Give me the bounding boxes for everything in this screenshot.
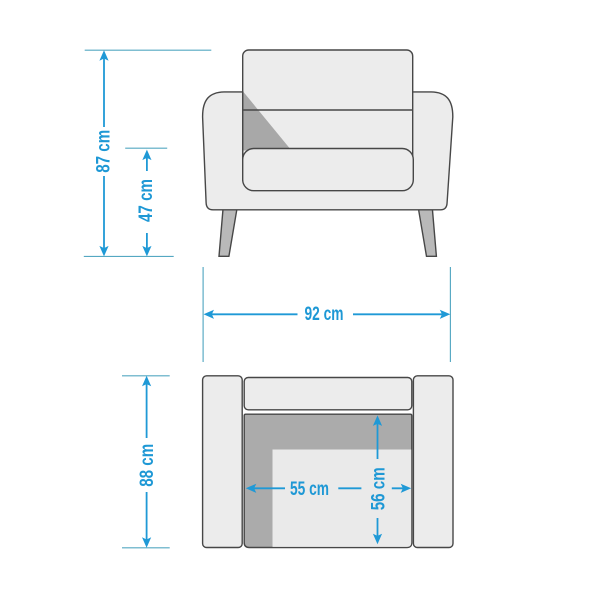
svg-text:55 cm: 55 cm [290,478,329,500]
svg-text:56 cm: 56 cm [367,467,389,510]
svg-text:88 cm: 88 cm [136,444,158,487]
svg-text:87 cm: 87 cm [92,130,114,173]
svg-text:92 cm: 92 cm [305,303,344,325]
svg-text:47 cm: 47 cm [135,179,157,222]
